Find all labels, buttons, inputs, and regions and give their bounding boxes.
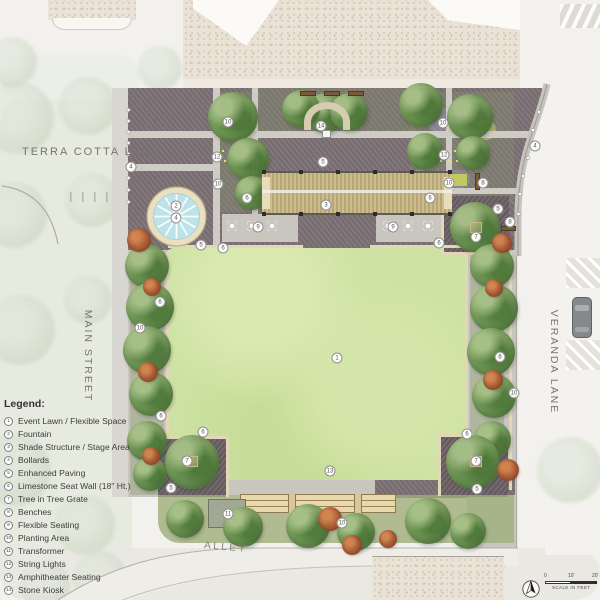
legend-item-number: 12 <box>4 560 13 569</box>
legend-item-label: Flexible Seating <box>18 520 79 530</box>
plan-marker: 5 <box>196 240 207 251</box>
accent-tree <box>483 370 503 390</box>
cafe-table <box>228 222 236 230</box>
marker-number: 7 <box>474 234 477 240</box>
plan-marker: 10 <box>135 323 146 334</box>
tree-canopy <box>407 133 443 169</box>
plan-marker: 5 <box>318 157 329 168</box>
accent-tree <box>138 362 158 382</box>
plan-marker: 5 <box>472 484 483 495</box>
plan-marker: 9 <box>253 222 264 233</box>
tree-canopy <box>467 328 515 376</box>
legend-item-number: 7 <box>4 495 13 504</box>
plan-marker: 3 <box>321 200 332 211</box>
legend-item: 6Limestone Seat Wall (18" Ht.) <box>4 481 131 491</box>
plan-marker: 11 <box>223 509 234 520</box>
plan-marker: 6 <box>218 243 229 254</box>
marker-number: 6 <box>245 195 248 201</box>
bench <box>348 91 364 96</box>
legend-item-label: String Lights <box>18 559 66 569</box>
shade-structure-post <box>262 170 266 174</box>
legend-item-label: Limestone Seat Wall (18" Ht.) <box>18 481 131 491</box>
accent-tree <box>143 278 161 296</box>
shade-structure-post <box>410 212 414 216</box>
marker-number: 11 <box>225 511 231 517</box>
shade-structure-post <box>373 170 377 174</box>
legend-item: 5Enhanced Paving <box>4 468 85 478</box>
marker-number: 12 <box>214 154 221 160</box>
tree-canopy <box>166 500 204 538</box>
shade-structure-post <box>410 170 414 174</box>
marker-number: 6 <box>428 195 431 201</box>
legend-item-number: 11 <box>4 547 13 556</box>
marker-number: 2 <box>174 203 177 209</box>
legend-item: 4Bollards <box>4 455 49 465</box>
marker-number: 10 <box>225 119 232 125</box>
street-label-main-street: MAIN STREET <box>82 310 94 403</box>
marker-number: 5 <box>496 206 499 212</box>
plan-marker: 12 <box>212 152 223 163</box>
building-south <box>372 556 504 600</box>
cafe-table <box>268 222 276 230</box>
legend-item: 10Planting Area <box>4 533 69 543</box>
marker-number: 6 <box>221 245 224 251</box>
legend-item-number: 10 <box>4 534 13 543</box>
bench <box>324 91 340 96</box>
legend-item: 11Transformer <box>4 546 64 556</box>
plan-marker: 4 <box>126 162 137 173</box>
shade-structure-post <box>448 212 452 216</box>
scale-bar: 0 10' 20' SCALE IN FEET <box>544 574 600 590</box>
marker-number: 4 <box>129 164 132 170</box>
marker-number: 12 <box>441 152 448 158</box>
marker-number: 10 <box>446 180 453 186</box>
marker-number: 10 <box>137 325 144 331</box>
legend-item-label: Amphitheater Seating <box>18 572 101 582</box>
tree-canopy <box>456 136 490 170</box>
shade-structure-post <box>336 170 340 174</box>
marker-number: 5 <box>475 486 478 492</box>
plan-marker: 12 <box>439 150 450 161</box>
legend-item-label: Transformer <box>18 546 64 556</box>
plan-marker: 14 <box>316 121 327 132</box>
marker-number: 6 <box>158 299 161 305</box>
plan-marker: 4 <box>530 141 541 152</box>
marker-number: 10 <box>339 520 346 526</box>
marker-number: 5 <box>321 159 324 165</box>
legend-item-number: 14 <box>4 586 13 595</box>
marker-number: 9 <box>256 224 259 230</box>
legend-item-label: Benches <box>18 507 51 517</box>
legend-item-number: 2 <box>4 430 13 439</box>
legend-item-label: Fountain <box>18 429 51 439</box>
plan-marker: 1 <box>332 353 343 364</box>
shade-structure-rail <box>262 190 452 193</box>
legend-item-label: Enhanced Paving <box>18 468 85 478</box>
marker-number: 4 <box>533 143 536 149</box>
tree-canopy <box>208 92 258 142</box>
marker-number: 6 <box>498 354 501 360</box>
plan-marker: 13 <box>325 466 336 477</box>
shade-structure-post <box>262 212 266 216</box>
marker-number: 5 <box>169 485 172 491</box>
tree-canopy <box>447 94 493 140</box>
tree-canopy <box>450 513 486 549</box>
tree-canopy <box>399 83 443 127</box>
accent-tree <box>142 447 160 465</box>
legend-item: 9Flexible Seating <box>4 520 79 530</box>
legend-item-label: Tree in Tree Grate <box>18 494 88 504</box>
legend-item: 8Benches <box>4 507 51 517</box>
marker-number: 6 <box>465 431 468 437</box>
scale-caption: SCALE IN FEET <box>552 586 590 591</box>
plan-marker: 10 <box>337 518 348 529</box>
legend-item: 14Stone Kiosk <box>4 585 64 595</box>
plan-marker: 6 <box>156 411 167 422</box>
bench <box>300 91 316 96</box>
marker-number: 6 <box>159 413 162 419</box>
shade-structure-post <box>448 170 452 174</box>
legend-item-number: 8 <box>4 508 13 517</box>
marker-number: 1 <box>335 355 338 361</box>
plan-marker: 10 <box>509 388 520 399</box>
marker-number: 10 <box>215 181 222 187</box>
legend-item: 3Shade Structure / Stage Area <box>4 442 130 452</box>
kiosk-base <box>322 130 331 138</box>
shade-structure-post <box>336 212 340 216</box>
legend-item-number: 1 <box>4 417 13 426</box>
site-plan: 4 10 14 12 5 10 6 3 2 4 10 12 4 10 8 6 5… <box>0 0 600 600</box>
legend-item-label: Planting Area <box>18 533 69 543</box>
marker-number: 7 <box>474 458 477 464</box>
shade-structure-post <box>299 212 303 216</box>
scale-zero: 0 <box>544 574 547 579</box>
legend-item-number: 6 <box>4 482 13 491</box>
accent-tree <box>127 228 151 252</box>
legend-item-label: Event Lawn / Flexible Space <box>18 416 126 426</box>
legend-item: 2Fountain <box>4 429 51 439</box>
legend-item: 12String Lights <box>4 559 66 569</box>
plan-marker: 6 <box>242 193 253 204</box>
legend-item: 13Amphitheater Seating <box>4 572 101 582</box>
marker-number: 5 <box>199 242 202 248</box>
legend-item-number: 9 <box>4 521 13 530</box>
marker-number: 8 <box>508 219 511 225</box>
plan-marker: 7 <box>471 232 482 243</box>
cafe-table <box>424 222 432 230</box>
street-fill-northeast <box>518 84 600 258</box>
accent-tree <box>342 535 362 555</box>
legend-item: 1Event Lawn / Flexible Space <box>4 416 126 426</box>
plan-marker: 8 <box>505 217 516 228</box>
cafe-table <box>404 222 412 230</box>
plan-marker: 9 <box>388 222 399 233</box>
legend-title: Legend: <box>4 398 45 410</box>
accent-tree <box>497 459 519 481</box>
plan-marker: 4 <box>171 213 182 224</box>
plan-marker: 10 <box>223 117 234 128</box>
shade-structure <box>262 171 452 215</box>
plan-marker: 2 <box>171 201 182 212</box>
marker-number: 10 <box>440 120 447 126</box>
marker-number: 13 <box>327 468 334 474</box>
legend-item-number: 4 <box>4 456 13 465</box>
marker-number: 6 <box>437 240 440 246</box>
north-arrow <box>523 581 539 598</box>
plan-marker: 8 <box>478 178 489 189</box>
scale-twenty: 20' <box>592 574 599 579</box>
accent-tree <box>492 233 512 253</box>
plan-marker: 5 <box>166 483 177 494</box>
accent-tree <box>485 279 503 297</box>
plan-marker: 10 <box>444 178 455 189</box>
plan-marker: 10 <box>438 118 449 129</box>
marker-number: 10 <box>511 390 518 396</box>
plan-marker: 5 <box>493 204 504 215</box>
plan-marker: 6 <box>495 352 506 363</box>
tree-canopy <box>405 498 451 544</box>
corner-curb <box>2 186 58 244</box>
plan-marker: 6 <box>462 429 473 440</box>
legend-item-label: Stone Kiosk <box>18 585 64 595</box>
marker-number: 14 <box>318 123 325 129</box>
street-label-terra-cotta-lane: TERRA COTTA LANE <box>22 146 161 158</box>
legend-item-number: 13 <box>4 573 13 582</box>
marker-number: 3 <box>324 202 327 208</box>
legend-item: 7Tree in Tree Grate <box>4 494 88 504</box>
legend-item-number: 5 <box>4 469 13 478</box>
legend-item-number: 3 <box>4 443 13 452</box>
plan-marker: 7 <box>182 456 193 467</box>
marker-number: 8 <box>481 180 484 186</box>
scale-segment-light <box>545 581 571 584</box>
scale-ten: 10' <box>568 574 575 579</box>
marker-number: 6 <box>201 429 204 435</box>
plan-marker: 6 <box>198 427 209 438</box>
shade-structure-post <box>299 170 303 174</box>
shade-structure-post <box>373 212 377 216</box>
plan-marker: 6 <box>434 238 445 249</box>
marker-number: 4 <box>174 215 177 221</box>
plan-marker: 7 <box>471 456 482 467</box>
plan-marker: 10 <box>213 179 224 190</box>
shade-structure-end-cap <box>262 177 270 209</box>
scale-segment-dark <box>571 581 597 584</box>
street-label-veranda-lane: VERANDA LANE <box>548 310 560 415</box>
accent-tree <box>379 530 397 548</box>
marker-number: 9 <box>391 224 394 230</box>
marker-number: 7 <box>185 458 188 464</box>
legend-item-label: Bollards <box>18 455 49 465</box>
plan-marker: 6 <box>155 297 166 308</box>
legend-item-label: Shade Structure / Stage Area <box>18 442 130 452</box>
plan-marker: 6 <box>425 193 436 204</box>
